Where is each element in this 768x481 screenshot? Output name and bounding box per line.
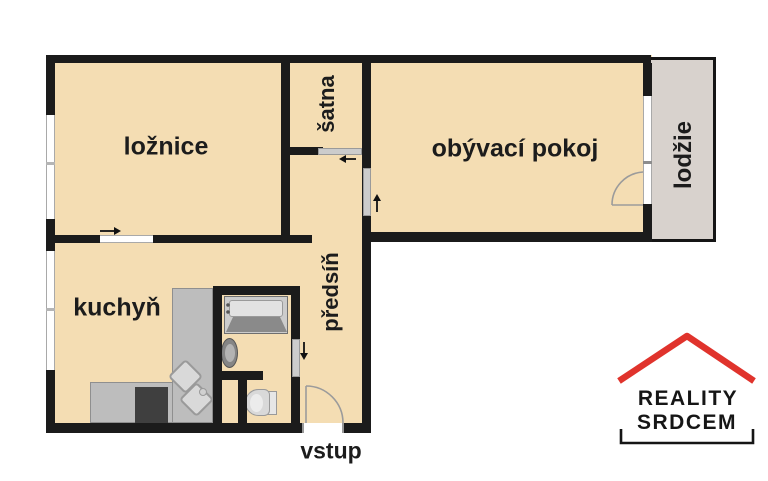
bathroom-left-wall (213, 286, 222, 423)
washbasin-inner (225, 344, 235, 362)
outer-wall-top (46, 55, 651, 63)
outer-wall-left (46, 55, 55, 433)
bathtub-rim (229, 300, 283, 317)
floorplan-canvas: ložnice šatna obývací pokoj lodžie kuchy… (0, 0, 768, 481)
bedroom-window (46, 115, 55, 219)
bedroom-bottom-wall (46, 235, 312, 243)
wc-partition-vertical (238, 371, 247, 423)
bedroom-sliding-door-opening (100, 235, 153, 243)
balcony-window-divider (643, 161, 652, 164)
bathroom-top-wall (213, 286, 300, 295)
loggia-label: lodžie (670, 121, 698, 189)
corridor-right-wall (362, 63, 371, 433)
logo-text-line2: SRDCEM (637, 411, 737, 435)
hallway-label: předsíň (318, 252, 344, 331)
bathroom-door (292, 339, 300, 377)
outer-wall-bottom-left (46, 423, 302, 433)
entrance-label: vstup (300, 438, 361, 465)
closet-door (318, 148, 362, 155)
entrance-opening (302, 423, 344, 433)
living-room-door (363, 168, 371, 216)
stove (135, 387, 168, 423)
logo-roof-icon (619, 336, 754, 381)
bedroom-window-divider (46, 162, 55, 165)
logo-text-line1: REALITY (638, 387, 738, 411)
living-room-bottom-wall (362, 232, 652, 242)
bedroom-right-wall (281, 63, 290, 243)
balcony-window (643, 96, 652, 204)
bedroom-label: ložnice (124, 133, 209, 162)
table-dot (199, 388, 207, 396)
kitchen-window-divider (46, 308, 55, 311)
toilet-inner (250, 394, 263, 412)
living-room-label: obývací pokoj (432, 135, 599, 164)
kitchen-label: kuchyň (73, 294, 161, 323)
closet-label: šatna (314, 75, 340, 132)
